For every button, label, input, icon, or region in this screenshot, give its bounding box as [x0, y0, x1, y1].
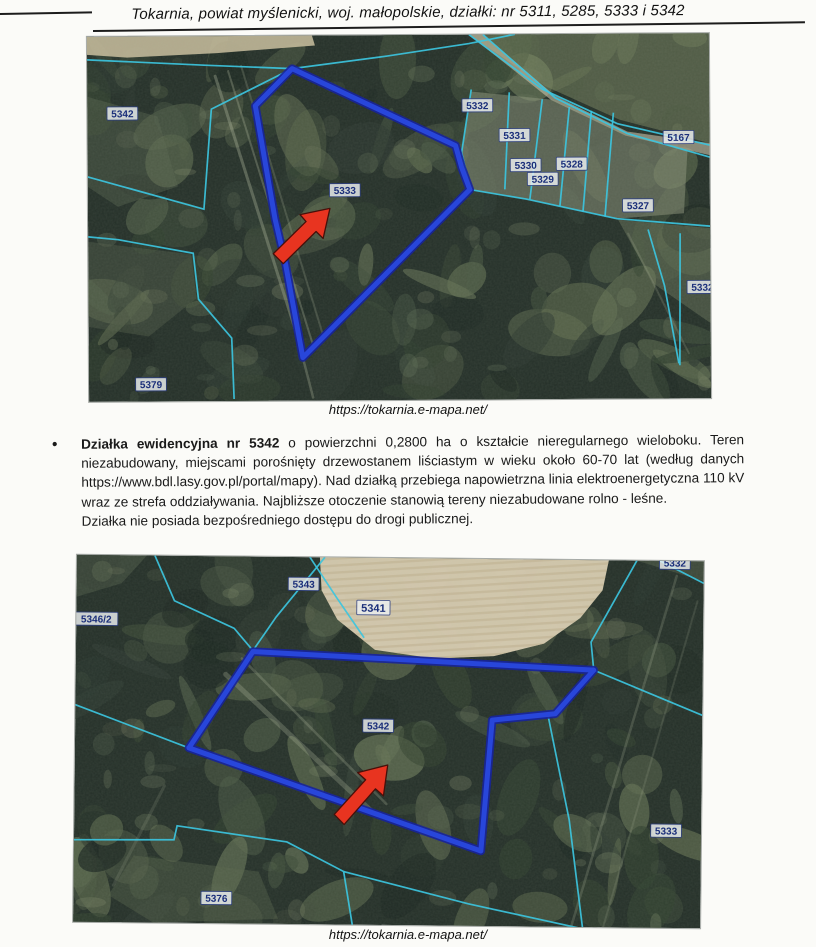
parcel-label-5167: 5167 — [663, 130, 694, 144]
page-title: Tokarnia, powiat myślenicki, woj. małopo… — [0, 1, 816, 24]
parcel-label-5342: 5342 — [107, 107, 138, 121]
parcel-label-5332: 5332 — [462, 99, 493, 113]
svg-text:5331: 5331 — [503, 131, 526, 142]
parcel-label-5332: 5332 — [659, 556, 690, 570]
parcel-label-5329: 5329 — [527, 172, 558, 186]
svg-text:5328: 5328 — [561, 159, 584, 170]
parcel-label-5332: 5332 — [687, 280, 711, 294]
satellite-map-parcel-5342: 534353415346/25342533353765332 — [73, 555, 704, 929]
svg-text:5332: 5332 — [691, 283, 711, 294]
svg-text:5342: 5342 — [111, 109, 134, 120]
parcel-label-5330: 5330 — [510, 158, 541, 172]
svg-text:5167: 5167 — [667, 133, 690, 144]
svg-text:5341: 5341 — [361, 603, 386, 615]
parcel-access-note: Działka nie posiada bezpośredniego dostę… — [82, 507, 745, 531]
bullet-icon: • — [52, 436, 57, 453]
satellite-map-5342-image: 534353415346/25342533353765332 — [73, 555, 704, 929]
parcel-description-item: • Działka ewidencyjna nr 5342 o powierzc… — [52, 430, 745, 531]
svg-text:5376: 5376 — [205, 894, 228, 905]
parcel-label-5331: 5331 — [499, 128, 530, 142]
svg-text:5332: 5332 — [664, 558, 687, 569]
parcel-label-5342: 5342 — [363, 719, 394, 733]
svg-text:5327: 5327 — [627, 201, 650, 212]
svg-text:5379: 5379 — [140, 380, 163, 391]
parcel-description-paragraph: Działka ewidencyjna nr 5342 o powierzchn… — [81, 430, 745, 511]
parcel-label-5379: 5379 — [136, 378, 167, 392]
map1-source-url: https://tokarnia.e-mapa.net/ — [0, 402, 816, 417]
parcel-label-5341: 5341 — [357, 600, 390, 615]
document-page: Tokarnia, powiat myślenicki, woj. małopo… — [0, 0, 816, 947]
header-underline — [93, 21, 805, 32]
svg-text:5330: 5330 — [515, 161, 538, 172]
parcel-label-5376: 5376 — [201, 891, 232, 905]
svg-text:5332: 5332 — [466, 101, 489, 112]
satellite-map-5333-image: 5342533353325331533053295328516753275379… — [87, 33, 711, 402]
parcel-label-5343: 5343 — [288, 577, 319, 591]
parcel-label-5327: 5327 — [622, 199, 653, 213]
svg-text:5329: 5329 — [532, 175, 555, 186]
satellite-map-parcel-5333: 5342533353325331533053295328516753275379… — [87, 33, 711, 402]
parcel-description-text: Działka ewidencyjna nr 5342 o powierzchn… — [81, 430, 745, 531]
parcel-label-5346-2: 5346/2 — [75, 612, 118, 626]
svg-text:5342: 5342 — [367, 721, 390, 732]
parcel-label-5333: 5333 — [651, 824, 682, 838]
svg-text:5333: 5333 — [655, 826, 678, 837]
svg-text:5343: 5343 — [292, 580, 315, 591]
parcel-label-5328: 5328 — [556, 157, 587, 171]
svg-text:5346/2: 5346/2 — [81, 614, 112, 625]
map2-source-url: https://tokarnia.e-mapa.net/ — [0, 927, 816, 942]
parcel-description-bold: Działka ewidencyjna nr 5342 — [81, 435, 279, 451]
svg-text:5333: 5333 — [334, 186, 357, 197]
parcel-label-5333: 5333 — [329, 183, 360, 197]
